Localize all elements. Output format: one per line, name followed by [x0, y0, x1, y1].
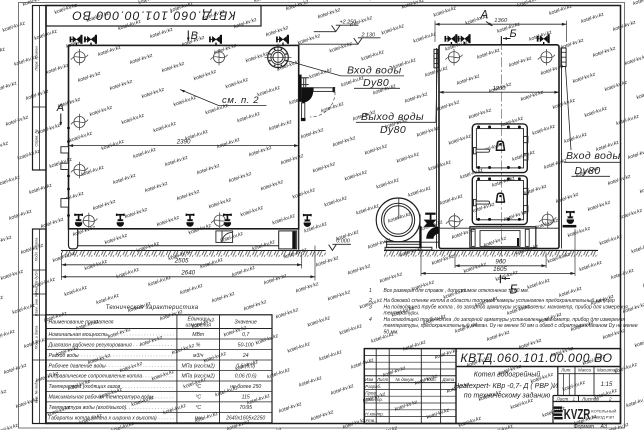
svg-text:kotel-kv.kz: kotel-kv.kz: [257, 85, 282, 99]
svg-text:kotel-kv.kz: kotel-kv.kz: [84, 259, 109, 273]
svg-text:Наименование показателя: Наименование показателя: [49, 320, 114, 326]
svg-text:kotel-kv.kz: kotel-kv.kz: [28, 182, 53, 196]
svg-text:kotel-kv.kz: kotel-kv.kz: [580, 11, 605, 25]
svg-text:°С: °С: [195, 395, 201, 401]
svg-text:kotel-kv.kz: kotel-kv.kz: [110, 421, 135, 430]
svg-text:3: 3: [369, 304, 372, 310]
svg-text:1260: 1260: [493, 86, 507, 92]
svg-text:Разраб.: Разраб.: [365, 384, 381, 389]
svg-text:kotel-kv.kz: kotel-kv.kz: [558, 285, 583, 299]
svg-text:960: 960: [495, 259, 506, 266]
svg-text:kotel-kv.kz: kotel-kv.kz: [458, 415, 483, 429]
svg-text:Подп. и дата: Подп. и дата: [35, 326, 39, 350]
svg-text:kotel-kv.kz: kotel-kv.kz: [268, 119, 293, 133]
svg-text:На подводящей трубе котла ,: На подводящей трубе котла , до запорной …: [384, 303, 629, 310]
svg-text:kotel-kv.kz: kotel-kv.kz: [364, 143, 389, 157]
svg-text:kotel-kv.kz: kotel-kv.kz: [527, 277, 552, 291]
svg-text:kotel-kv.kz: kotel-kv.kz: [396, 151, 421, 165]
svg-text:kotel-kv.kz: kotel-kv.kz: [164, 155, 189, 169]
svg-text:kotel-kv.kz: kotel-kv.kz: [228, 171, 253, 185]
svg-text:°С: °С: [195, 384, 201, 390]
svg-text:50 мм.: 50 мм.: [384, 329, 399, 335]
svg-text:kotel-kv.kz: kotel-kv.kz: [109, 78, 134, 92]
svg-text:kotel-kv.kz: kotel-kv.kz: [121, 113, 146, 127]
svg-text:Утв.: Утв.: [365, 418, 375, 423]
svg-text:КВТД.060.101.00.000 ВО: КВТД.060.101.00.000 ВО: [460, 351, 612, 365]
svg-text:Т.контр.: Т.контр.: [365, 397, 383, 402]
svg-text:Взам. инв. №: Взам. инв. №: [35, 293, 39, 316]
svg-text:kotel-kv.kz: kotel-kv.kz: [8, 208, 33, 222]
svg-text:м3/ч: м3/ч: [193, 353, 204, 359]
svg-text:kotel-kv.kz: kotel-kv.kz: [72, 224, 97, 238]
svg-text:1: 1: [369, 288, 372, 294]
svg-text:Масса: Масса: [578, 368, 592, 373]
svg-text:kotel-kv.kz: kotel-kv.kz: [69, 130, 94, 144]
svg-text:kotel-kv.kz: kotel-kv.kz: [508, 55, 533, 69]
svg-text:kotel-kv.kz: kotel-kv.kz: [485, 0, 510, 1]
svg-text:Перв. примен.: Перв. примен.: [35, 45, 39, 70]
svg-text:Heatexpert- КВр -0,7- Д ( РВР: Heatexpert- КВр -0,7- Д ( РВР )И: [454, 383, 559, 390]
svg-text:115: 115: [242, 395, 250, 401]
svg-text:kotel-kv.kz: kotel-kv.kz: [295, 281, 320, 295]
svg-text:kotel-kv.kz: kotel-kv.kz: [318, 349, 343, 363]
svg-text:Dy80: Dy80: [575, 165, 601, 177]
svg-text:kotel-kv.kz: kotel-kv.kz: [240, 205, 265, 219]
svg-text:kotel-kv.kz: kotel-kv.kz: [520, 89, 545, 103]
svg-text:kotel-kv.kz: kotel-kv.kz: [95, 293, 120, 307]
svg-text:1:15: 1:15: [601, 382, 613, 388]
svg-text:kotel-kv.kz: kotel-kv.kz: [132, 147, 157, 161]
svg-text:На отводящей трубе котла ,до з: На отводящей трубе котла ,до запорной ар…: [384, 316, 626, 323]
svg-text:kotel-kv.kz: kotel-kv.kz: [639, 182, 644, 196]
svg-text:kotel-kv.kz: kotel-kv.kz: [602, 328, 627, 342]
svg-text:kotel-kv.kz: kotel-kv.kz: [503, 209, 528, 223]
svg-text:0,7: 0,7: [242, 332, 249, 338]
svg-text:МВт: МВт: [192, 332, 204, 338]
svg-text:kotel-kv.kz: kotel-kv.kz: [0, 80, 18, 94]
svg-text:kotel-kv.kz: kotel-kv.kz: [280, 153, 305, 167]
svg-text:kotel-kv.kz: kotel-kv.kz: [599, 234, 624, 248]
svg-text:КВТД.060.101.00.000 ВО: КВТД.060.101.00.000 ВО: [71, 9, 236, 23]
svg-text:Масштаб: Масштаб: [597, 368, 618, 373]
svg-text:Подп. и дата: Подп. и дата: [35, 238, 39, 262]
svg-text:0,06 (0,6): 0,06 (0,6): [235, 374, 257, 380]
svg-text:2390: 2390: [176, 138, 191, 145]
svg-text:МПа (кгс/см2): МПа (кгс/см2): [182, 374, 216, 380]
svg-text:kotel-kv.kz: kotel-kv.kz: [344, 169, 369, 183]
svg-text:kotel-kv.kz: kotel-kv.kz: [463, 261, 488, 275]
svg-text:kotel-kv.kz: kotel-kv.kz: [510, 397, 535, 411]
svg-text:kotel-kv.kz: kotel-kv.kz: [407, 185, 432, 199]
svg-text:Dy80: Dy80: [380, 124, 406, 136]
svg-text:kotel-kv.kz: kotel-kv.kz: [104, 233, 129, 247]
svg-text:kotel-kv.kz: kotel-kv.kz: [176, 189, 201, 203]
svg-text:kotel-kv.kz: kotel-kv.kz: [0, 328, 16, 342]
svg-text:Инв. № подл.: Инв. № подл.: [35, 380, 39, 404]
svg-text:kotel-kv.kz: kotel-kv.kz: [233, 17, 258, 31]
svg-text:kotel-kv.kz: kotel-kv.kz: [149, 27, 174, 41]
svg-text:Справ. №: Справ. №: [35, 129, 39, 146]
svg-text:2505: 2505: [174, 258, 189, 265]
svg-text:50-100: 50-100: [238, 342, 254, 348]
svg-text:kotel-kv.kz: kotel-kv.kz: [225, 77, 250, 91]
svg-text:kotel-kv.kz: kotel-kv.kz: [161, 61, 186, 75]
svg-text:Вход воды: Вход воды: [347, 64, 402, 76]
svg-text:kotel-kv.kz: kotel-kv.kz: [64, 284, 89, 298]
svg-text:измерения: измерения: [185, 323, 211, 329]
svg-text:kotel-kv.kz: kotel-kv.kz: [92, 198, 117, 212]
svg-text:kotel-kv.kz: kotel-kv.kz: [587, 199, 612, 213]
svg-text:Все размеры для справок , допу: Все размеры для справок , допустимое отк…: [384, 288, 530, 294]
svg-text:2640х1605х2250: 2640х1605х2250: [225, 416, 265, 422]
svg-text:kotel-kv.kz: kotel-kv.kz: [330, 383, 355, 397]
svg-text:kotel-kv.kz: kotel-kv.kz: [562, 380, 587, 394]
svg-text:kotel-kv.kz: kotel-kv.kz: [615, 113, 640, 127]
svg-text:kotel-kv.kz: kotel-kv.kz: [381, 23, 406, 37]
svg-text:kotel-kv.kz: kotel-kv.kz: [199, 257, 224, 271]
svg-text:kotel-kv.kz: kotel-kv.kz: [0, 294, 5, 308]
svg-text:В: В: [191, 30, 198, 42]
svg-text:Лист: Лист: [556, 396, 569, 401]
svg-text:kotel-kv.kz: kotel-kv.kz: [112, 173, 137, 187]
svg-text:по техническому заданию: по техническому заданию: [464, 391, 551, 399]
svg-text:kotel-kv.kz: kotel-kv.kz: [0, 46, 6, 60]
svg-text:2: 2: [608, 396, 612, 401]
svg-text:Расход воды: Расход воды: [49, 353, 79, 359]
svg-text:kotel-kv.kz: kotel-kv.kz: [139, 335, 164, 349]
svg-text:kotel-kv.kz: kotel-kv.kz: [231, 265, 256, 279]
svg-text:0,6 (6,0): 0,6 (6,0): [236, 363, 255, 369]
svg-text:kotel-kv.kz: kotel-kv.kz: [292, 187, 317, 201]
svg-text:Дата: Дата: [442, 377, 455, 382]
svg-text:kotel-kv.kz: kotel-kv.kz: [404, 91, 429, 105]
svg-text:kotel-kv.kz: kotel-kv.kz: [196, 163, 221, 177]
svg-text:Пров.: Пров.: [365, 391, 377, 396]
svg-text:не более 250: не более 250: [230, 384, 261, 390]
svg-text:+2.250: +2.250: [340, 20, 357, 26]
svg-text:kotel-kv.kz: kotel-kv.kz: [248, 145, 273, 159]
svg-text:Лит.: Лит.: [560, 368, 571, 373]
svg-text:kotel-kv.kz: kotel-kv.kz: [619, 208, 644, 222]
svg-text:kotel-kv.kz: kotel-kv.kz: [439, 193, 464, 207]
svg-text:kotel-kv.kz: kotel-kv.kz: [275, 307, 300, 321]
svg-text:24: 24: [242, 353, 249, 359]
svg-text:kotel-kv.kz: kotel-kv.kz: [260, 179, 285, 193]
svg-text:kotel-kv.kz: kotel-kv.kz: [624, 53, 644, 67]
svg-text:Лист: Лист: [376, 377, 389, 382]
svg-text:1360: 1360: [494, 18, 508, 24]
svg-text:kotel-kv.kz: kotel-kv.kz: [376, 177, 401, 191]
svg-text:kotel-kv.kz: kotel-kv.kz: [426, 407, 451, 421]
svg-text:kotel-kv.kz: kotel-kv.kz: [2, 20, 27, 34]
svg-text:А3: А3: [600, 424, 607, 430]
svg-text:kotel-kv.kz: kotel-kv.kz: [300, 127, 325, 141]
svg-text:kotel-kv.kz: kotel-kv.kz: [490, 423, 515, 430]
svg-text:kotel-kv.kz: kotel-kv.kz: [243, 299, 268, 313]
svg-text:kotel-kv.kz: kotel-kv.kz: [560, 37, 585, 51]
svg-text:70/95: 70/95: [239, 405, 252, 411]
svg-text:kotel-kv.kz: kotel-kv.kz: [491, 175, 516, 189]
svg-text:Значение: Значение: [235, 320, 258, 326]
svg-text:kotel-kv.kz: kotel-kv.kz: [532, 123, 557, 137]
svg-text:см. п. 2: см. п. 2: [222, 95, 259, 106]
svg-text:Формат: Формат: [574, 424, 595, 430]
svg-text:kotel-kv.kz: kotel-kv.kz: [387, 211, 412, 225]
svg-text:%: %: [196, 342, 201, 348]
svg-text:kotel-kv.kz: kotel-kv.kz: [486, 329, 511, 343]
svg-text:1: 1: [573, 396, 576, 401]
svg-text:ЗАВОД РЭП: ЗАВОД РЭП: [591, 415, 614, 420]
svg-text:1605: 1605: [493, 266, 507, 273]
svg-text:kotel-kv.kz: kotel-kv.kz: [144, 181, 169, 195]
svg-text:kotel-kv.kz: kotel-kv.kz: [563, 131, 588, 145]
svg-text:kotel-kv.kz: kotel-kv.kz: [216, 137, 241, 151]
svg-text:kotel-kv.kz: kotel-kv.kz: [309, 67, 334, 81]
svg-text:KVZR: KVZR: [564, 407, 591, 423]
svg-text:kotel-kv.kz: kotel-kv.kz: [433, 5, 458, 19]
svg-text:kotel-kv.kz: kotel-kv.kz: [592, 45, 617, 59]
svg-text:Выход воды: Выход воды: [361, 111, 424, 123]
svg-text:kotel-kv.kz: kotel-kv.kz: [627, 148, 644, 162]
svg-text:kotel-kv.kz: kotel-kv.kz: [89, 104, 114, 118]
svg-text:2.130: 2.130: [361, 32, 376, 38]
svg-text:kotel-kv.kz: kotel-kv.kz: [543, 157, 568, 171]
svg-text:МПа (кгс/см2): МПа (кгс/см2): [182, 363, 216, 369]
svg-text:kotel-kv.kz: kotel-kv.kz: [17, 148, 42, 162]
svg-text:°С: °С: [195, 405, 201, 411]
svg-text:Инв. № дубл.: Инв. № дубл.: [35, 270, 39, 293]
svg-text:kotel-kv.kz: kotel-kv.kz: [416, 125, 441, 139]
svg-text:температуры.: температуры.: [384, 311, 420, 317]
svg-text:kotel-kv.kz: kotel-kv.kz: [156, 215, 181, 229]
svg-text:kotel-kv.kz: kotel-kv.kz: [179, 283, 204, 297]
svg-text:Габариты котла (длина х ширина: Габариты котла (длина х ширина х высота): [49, 416, 157, 422]
svg-text:Н.контр.: Н.контр.: [365, 411, 384, 416]
svg-text:Котел водогрейный: Котел водогрейный: [474, 370, 541, 378]
svg-text:kotel-kv.kz: kotel-kv.kz: [468, 107, 493, 121]
svg-text:kotel-kv.kz: kotel-kv.kz: [324, 195, 349, 209]
svg-text:2640: 2640: [180, 270, 195, 277]
svg-text:kotel-kv.kz: kotel-kv.kz: [307, 315, 332, 329]
svg-text:kotel-kv.kz: kotel-kv.kz: [315, 255, 340, 269]
svg-text:kotel-kv.kz: kotel-kv.kz: [162, 403, 187, 417]
svg-text:kotel-kv.kz: kotel-kv.kz: [317, 7, 342, 21]
svg-text:kotel-kv.kz: kotel-kv.kz: [610, 268, 635, 282]
svg-text:kotel-kv.kz: kotel-kv.kz: [208, 197, 233, 211]
svg-text:kotel-kv.kz: kotel-kv.kz: [0, 140, 10, 154]
svg-text:kotel-kv.kz: kotel-kv.kz: [332, 135, 357, 149]
svg-text:kotel-kv.kz: kotel-kv.kz: [153, 121, 178, 135]
svg-text:kotel-kv.kz: kotel-kv.kz: [310, 409, 335, 423]
svg-text:0.000: 0.000: [336, 239, 350, 245]
svg-text:kotel-kv.kz: kotel-kv.kz: [361, 49, 386, 63]
svg-text:kotel-kv.kz: kotel-kv.kz: [394, 399, 419, 413]
svg-text:kotel-kv.kz: kotel-kv.kz: [97, 44, 122, 58]
svg-text:kotel-kv.kz: kotel-kv.kz: [634, 336, 644, 350]
svg-text:А: А: [480, 10, 489, 22]
svg-text:kotel-kv.kz: kotel-kv.kz: [632, 0, 644, 7]
svg-text:kotel-kv.kz: kotel-kv.kz: [129, 53, 154, 67]
svg-text:kotel-kv.kz: kotel-kv.kz: [625, 396, 644, 410]
svg-text:kotel-kv.kz: kotel-kv.kz: [265, 25, 290, 39]
svg-text:kotel-kv.kz: kotel-kv.kz: [22, 0, 47, 8]
svg-text:kotel-kv.kz: kotel-kv.kz: [413, 31, 438, 45]
svg-text:kotel-kv.kz: kotel-kv.kz: [631, 242, 644, 256]
svg-text:kotel-kv.kz: kotel-kv.kz: [263, 273, 288, 287]
svg-text:kotel-kv.kz: kotel-kv.kz: [37, 122, 62, 136]
svg-text:Номинальная мощность: Номинальная мощность: [49, 332, 109, 338]
svg-text:kotel-kv.kz: kotel-kv.kz: [211, 291, 236, 305]
svg-text:kotel-kv.kz: kotel-kv.kz: [3, 362, 28, 376]
svg-text:Dy80: Dy80: [363, 77, 389, 89]
svg-text:kotel-kv.kz: kotel-kv.kz: [312, 161, 337, 175]
svg-text:Подп.: Подп.: [425, 377, 437, 382]
svg-text:kotel-kv.kz: kotel-kv.kz: [636, 88, 644, 102]
svg-text:kotel-kv.kz: kotel-kv.kz: [119, 361, 144, 375]
svg-text:4: 4: [369, 317, 372, 323]
svg-text:kotel-kv.kz: kotel-kv.kz: [428, 159, 453, 173]
svg-text:kotel-kv.kz: kotel-kv.kz: [266, 367, 291, 381]
svg-text:kotel-kv.kz: kotel-kv.kz: [329, 41, 354, 55]
svg-text:kotel-kv.kz: kotel-kv.kz: [45, 62, 70, 76]
svg-text:kotel-kv.kz: kotel-kv.kz: [0, 268, 25, 282]
svg-text:№ докум.: № докум.: [395, 377, 414, 382]
svg-text:kotel-kv.kz: kotel-kv.kz: [476, 47, 501, 61]
svg-text:kotel-kv.kz: kotel-kv.kz: [572, 71, 597, 85]
svg-text:Изм: Изм: [365, 377, 373, 382]
svg-text:kotel-kv.kz: kotel-kv.kz: [124, 207, 149, 221]
svg-text:Вход воды: Вход воды: [566, 150, 621, 162]
svg-text:kotel-kv.kz: kotel-kv.kz: [236, 111, 261, 125]
svg-text:kotel-kv.kz: kotel-kv.kz: [327, 289, 352, 303]
svg-text:kotel-kv.kz: kotel-kv.kz: [278, 401, 303, 415]
svg-text:kotel-kv.kz: kotel-kv.kz: [0, 234, 13, 248]
svg-text:kotel-kv.kz: kotel-kv.kz: [584, 105, 609, 119]
svg-text:kotel-kv.kz: kotel-kv.kz: [272, 213, 297, 227]
svg-text:kotel-kv.kz: kotel-kv.kz: [77, 70, 102, 84]
svg-text:Листов: Листов: [581, 396, 599, 401]
svg-text:kotel-kv.kz: kotel-kv.kz: [255, 333, 280, 347]
svg-text:мм: мм: [195, 416, 202, 422]
svg-text:kotel-kv.kz: kotel-kv.kz: [40, 216, 65, 230]
svg-text:kotel-kv.kz: kotel-kv.kz: [193, 69, 218, 83]
svg-text:kotel-kv.kz: kotel-kv.kz: [340, 75, 365, 89]
svg-text:kotel-kv.kz: kotel-kv.kz: [374, 425, 399, 430]
svg-text:kotel-kv.kz: kotel-kv.kz: [350, 357, 375, 371]
svg-text:kotel-kv.kz: kotel-kv.kz: [0, 422, 20, 430]
svg-text:На боковой стенке котла в обла: На боковой стенке котла в области топочн…: [384, 297, 616, 304]
svg-text:температуры, предохранительный: температуры, предохранительный клапан. D…: [384, 322, 638, 329]
svg-text:Температура уходящих газов: Температура уходящих газов: [49, 384, 121, 390]
svg-text:Б: Б: [510, 28, 517, 40]
svg-text:kotel-kv.kz: kotel-kv.kz: [173, 95, 198, 109]
svg-text:kotel-kv.kz: kotel-kv.kz: [552, 97, 577, 111]
svg-text:kotel-kv.kz: kotel-kv.kz: [347, 263, 372, 277]
svg-text:kotel-kv.kz: kotel-kv.kz: [607, 173, 632, 187]
svg-text:kotel-kv.kz: kotel-kv.kz: [448, 133, 473, 147]
svg-text:kotel-kv.kz: kotel-kv.kz: [298, 375, 323, 389]
svg-text:kotel-kv.kz: kotel-kv.kz: [116, 267, 141, 281]
svg-text:kotel-kv.kz: kotel-kv.kz: [379, 271, 404, 285]
svg-text:kotel-kv.kz: kotel-kv.kz: [141, 87, 166, 101]
svg-text:kotel-kv.kz: kotel-kv.kz: [402, 339, 427, 353]
svg-text:kotel-kv.kz: kotel-kv.kz: [579, 259, 604, 273]
svg-text:kotel-kv.kz: kotel-kv.kz: [339, 323, 364, 337]
svg-text:kotel-kv.kz: kotel-kv.kz: [0, 200, 1, 214]
svg-text:kotel-kv.kz: kotel-kv.kz: [517, 0, 542, 9]
svg-text:kotel-kv.kz: kotel-kv.kz: [287, 341, 312, 355]
svg-text:А: А: [56, 102, 64, 114]
svg-text:2: 2: [368, 298, 372, 304]
svg-text:kotel-kv.kz: kotel-kv.kz: [456, 73, 481, 87]
svg-text:kotel-kv.kz: kotel-kv.kz: [277, 59, 302, 73]
svg-text:kotel-kv.kz: kotel-kv.kz: [5, 114, 30, 128]
svg-text:kotel-kv.kz: kotel-kv.kz: [0, 388, 8, 402]
svg-text:КОТЕЛЬНЫЙ: КОТЕЛЬНЫЙ: [591, 409, 616, 414]
svg-text:Техническая характеристика: Техническая характеристика: [106, 305, 199, 311]
